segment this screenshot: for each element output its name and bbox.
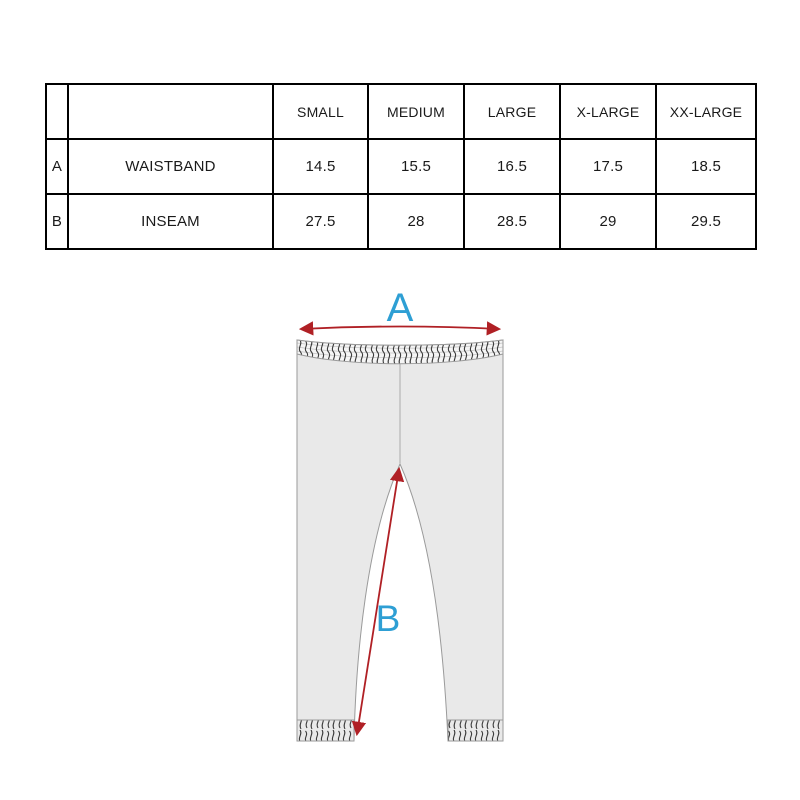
table-row-waistband: A WAISTBAND 14.5 15.5 16.5 17.5 18.5: [46, 139, 756, 194]
header-cell-xlarge: X-LARGE: [560, 84, 656, 139]
value-cell: 28.5: [464, 194, 560, 249]
table-row-inseam: B INSEAM 27.5 28 28.5 29 29.5: [46, 194, 756, 249]
value-cell: 17.5: [560, 139, 656, 194]
measure-label-a: A: [387, 288, 414, 330]
value-cell: 14.5: [273, 139, 368, 194]
table-header-row: SMALL MEDIUM LARGE X-LARGE XX-LARGE: [46, 84, 756, 139]
value-cell: 28: [368, 194, 464, 249]
row-key: B: [46, 194, 68, 249]
value-cell: 29: [560, 194, 656, 249]
left-cuff: [297, 720, 354, 741]
right-cuff: [448, 720, 503, 741]
measurement-label: WAISTBAND: [68, 139, 273, 194]
size-chart-table: SMALL MEDIUM LARGE X-LARGE XX-LARGE A WA…: [45, 83, 757, 250]
value-cell: 27.5: [273, 194, 368, 249]
leggings-diagram-svg: A B: [270, 288, 530, 758]
header-cell-xxlarge: XX-LARGE: [656, 84, 756, 139]
header-cell-measurement: [68, 84, 273, 139]
leggings-measurement-diagram: A B: [270, 288, 530, 758]
header-cell-small: SMALL: [273, 84, 368, 139]
row-key: A: [46, 139, 68, 194]
value-cell: 16.5: [464, 139, 560, 194]
header-cell-key: [46, 84, 68, 139]
header-cell-medium: MEDIUM: [368, 84, 464, 139]
value-cell: 29.5: [656, 194, 756, 249]
header-cell-large: LARGE: [464, 84, 560, 139]
measure-label-b: B: [376, 598, 401, 639]
value-cell: 15.5: [368, 139, 464, 194]
measurement-label: INSEAM: [68, 194, 273, 249]
value-cell: 18.5: [656, 139, 756, 194]
size-chart-page: SMALL MEDIUM LARGE X-LARGE XX-LARGE A WA…: [0, 0, 800, 800]
